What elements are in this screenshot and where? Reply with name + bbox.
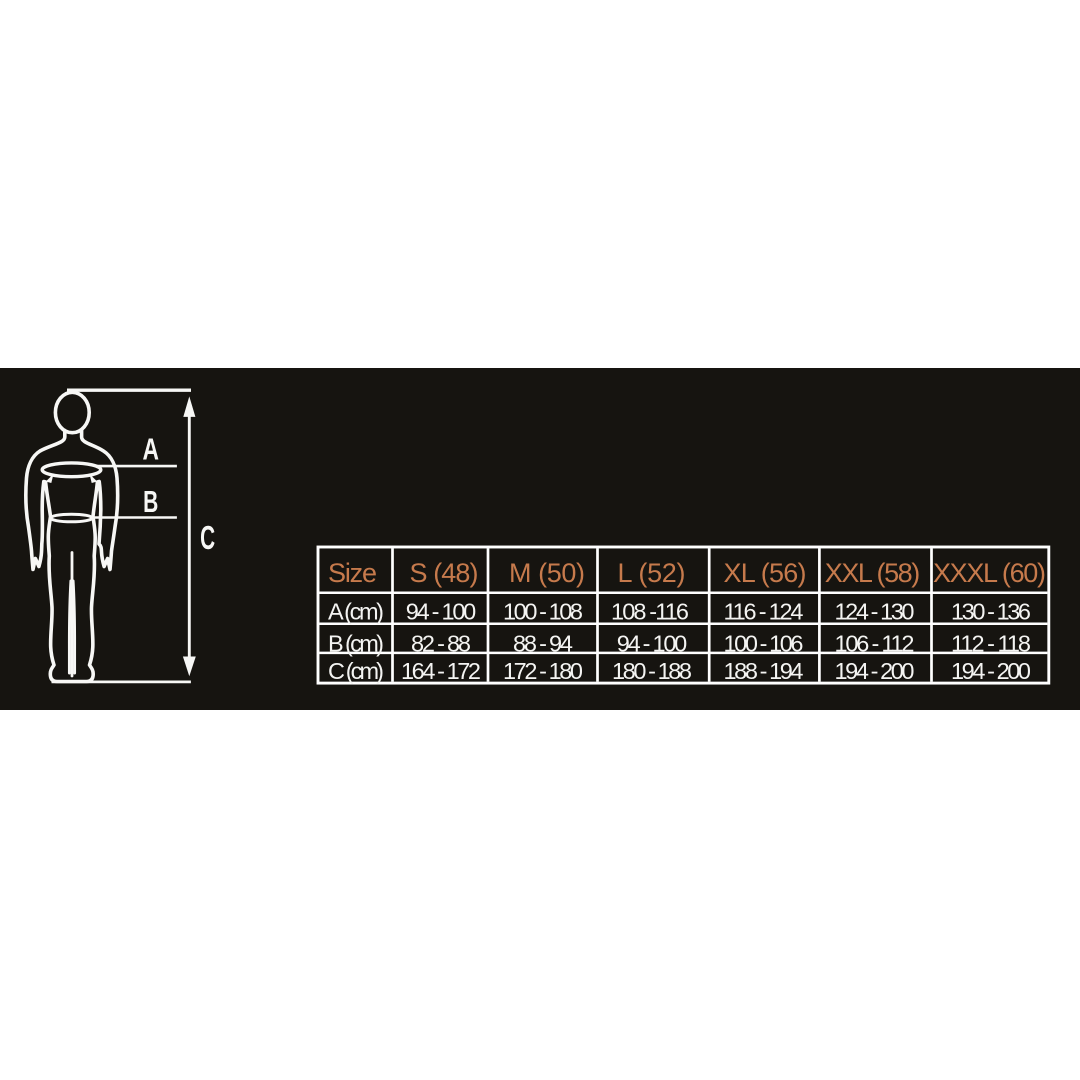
svg-text:Size: Size <box>328 558 377 588</box>
svg-text:116 - 124: 116 - 124 <box>724 598 804 624</box>
svg-text:194 - 200: 194 - 200 <box>951 658 1031 684</box>
svg-text:180 - 188: 180 - 188 <box>612 658 692 684</box>
svg-text:94 - 100: 94 - 100 <box>406 598 477 624</box>
svg-text:172 - 180: 172 - 180 <box>503 658 583 684</box>
svg-text:A (cm): A (cm) <box>328 598 384 624</box>
svg-text:112 - 118: 112 - 118 <box>951 630 1031 656</box>
svg-text:B (cm): B (cm) <box>328 630 384 656</box>
svg-text:108 -116: 108 -116 <box>611 598 689 624</box>
svg-text:A: A <box>142 432 159 467</box>
svg-text:L (52): L (52) <box>618 558 686 588</box>
svg-text:100 - 108: 100 - 108 <box>503 598 583 624</box>
svg-text:C: C <box>200 519 215 556</box>
svg-text:94 - 100: 94 - 100 <box>617 630 688 656</box>
svg-text:B: B <box>143 484 158 519</box>
svg-text:C (cm): C (cm) <box>328 658 384 684</box>
svg-text:130 - 136: 130 - 136 <box>951 598 1031 624</box>
svg-text:XXL (58): XXL (58) <box>825 558 921 588</box>
svg-text:82 - 88: 82 - 88 <box>411 630 471 656</box>
svg-text:100 - 106: 100 - 106 <box>724 630 804 656</box>
svg-text:XL (56): XL (56) <box>724 558 807 588</box>
svg-text:XXXL (60): XXXL (60) <box>933 558 1046 588</box>
svg-text:106 - 112: 106 - 112 <box>835 630 915 656</box>
svg-text:S (48): S (48) <box>410 558 479 588</box>
svg-text:124 - 130: 124 - 130 <box>835 598 915 624</box>
svg-text:88 - 94: 88 - 94 <box>513 630 573 656</box>
svg-text:164 - 172: 164 - 172 <box>401 658 481 684</box>
svg-text:194 - 200: 194 - 200 <box>835 658 915 684</box>
svg-text:188 - 194: 188 - 194 <box>724 658 804 684</box>
svg-text:M (50): M (50) <box>509 558 585 588</box>
